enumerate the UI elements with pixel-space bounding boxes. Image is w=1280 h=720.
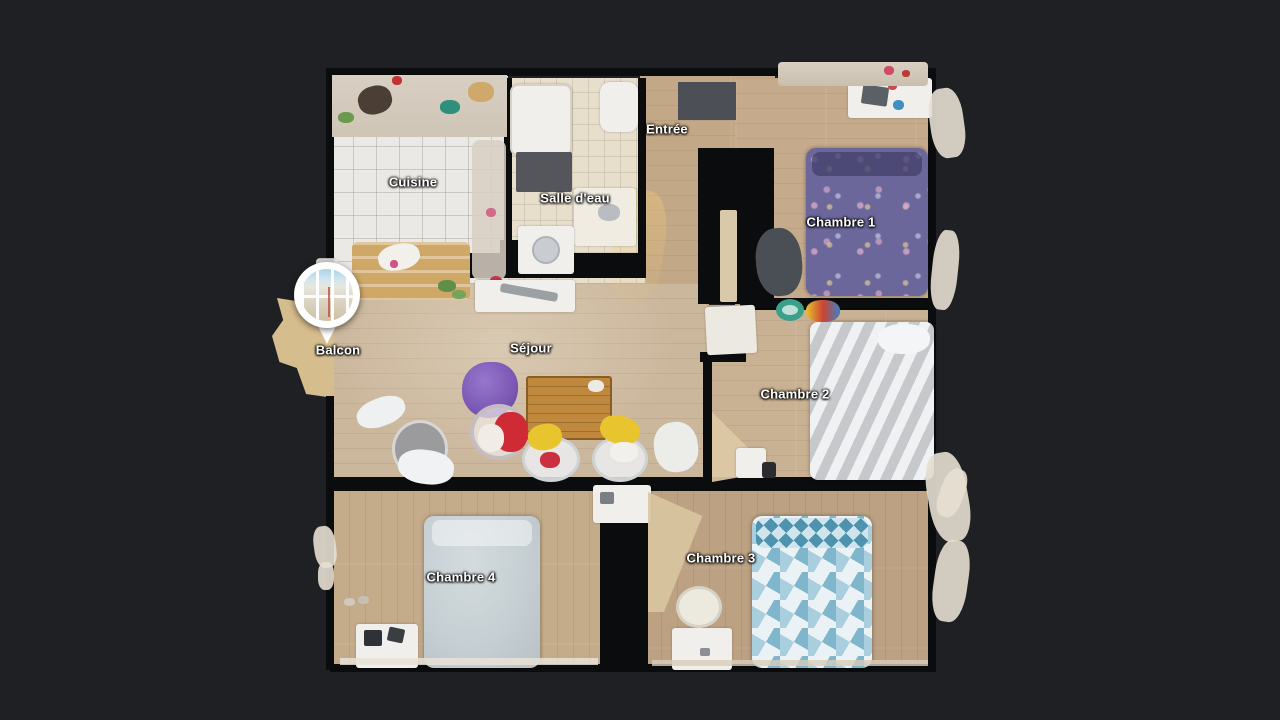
bed-chambre1-pillow (812, 152, 922, 176)
closet-door-open (720, 210, 737, 302)
table1-item-red (540, 452, 560, 468)
artifact-left-2 (318, 562, 334, 590)
stool-chambre3 (676, 586, 722, 628)
floorplan-stage: Cuisine Salle d'eau Entrée Chambre 1 Cha… (0, 0, 1280, 720)
wall-ch2-left (703, 360, 712, 488)
nightstand-item (700, 648, 710, 656)
bed-chambre4-fold (432, 520, 532, 546)
washer-drum (532, 236, 560, 264)
table2-item-white (610, 442, 638, 462)
baseboard-chambre3 (652, 660, 928, 666)
baseboard-chambre4 (340, 658, 598, 665)
label-cuisine: Cuisine (389, 175, 437, 190)
desk-item-blue (893, 100, 904, 110)
chest-item-white (588, 380, 604, 392)
bath-sink (598, 204, 620, 221)
label-sejour: Séjour (510, 341, 552, 356)
label-chambre2: Chambre 2 (761, 387, 830, 402)
viewpoint-pin[interactable] (294, 262, 360, 328)
label-entree: Entrée (646, 122, 688, 137)
label-chambre4: Chambre 4 (427, 570, 496, 585)
wardrobe-chambre2 (705, 305, 757, 356)
bed-chambre2-pillow (878, 324, 930, 354)
play-ring-teal (776, 299, 804, 321)
label-salle-deau: Salle d'eau (540, 191, 610, 206)
chair-white-pillow (478, 424, 504, 452)
kitchen-clutter-red (392, 76, 402, 85)
kitchen-pink-item (390, 260, 398, 268)
clutter-tr-pink (884, 66, 894, 75)
bathtub (510, 84, 572, 156)
desk4-item-dark1 (364, 630, 382, 646)
pin-photo-red-rail (328, 287, 330, 317)
kitchen-clutter-green (338, 112, 354, 123)
wall-bain-entree (638, 78, 646, 253)
mini-desk-divider (593, 485, 651, 523)
viewpoint-pin-photo (301, 269, 353, 321)
dark-item-chambre2 (762, 462, 776, 478)
kitchen-side-pink (486, 208, 496, 217)
room-floor-sejour[interactable] (333, 283, 707, 485)
shoes-2 (358, 596, 369, 604)
play-mat-multicolor (806, 300, 840, 322)
kitchen-clutter-beige (468, 82, 494, 102)
laptop-chambre1 (861, 84, 889, 106)
mini-desk-item (600, 492, 614, 504)
doormat (678, 82, 736, 120)
kitchen-plant2 (452, 290, 466, 299)
bath-mat (516, 152, 572, 192)
label-balcon: Balcon (316, 343, 361, 358)
kitchen-clutter-teal (440, 100, 460, 114)
pin-photo-window-frames (301, 269, 353, 321)
desk4-item-dark2 (387, 626, 406, 643)
bed-chambre3-pillow (756, 518, 868, 548)
clutter-tr-red (902, 70, 910, 77)
shoes-1 (344, 598, 355, 606)
label-chambre3: Chambre 3 (687, 551, 756, 566)
label-chambre1: Chambre 1 (807, 215, 876, 230)
toilet (600, 82, 638, 132)
